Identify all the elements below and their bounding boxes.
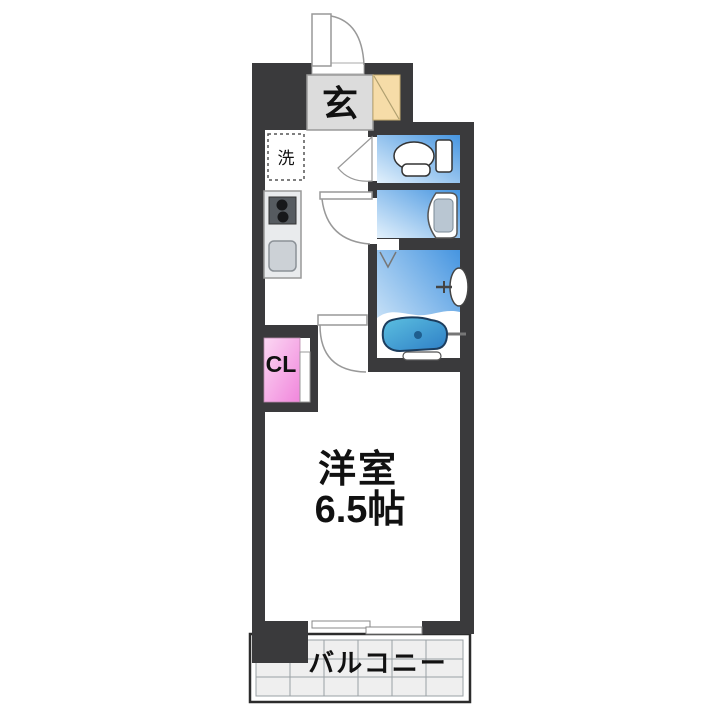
kitchen-sink-icon	[269, 241, 296, 271]
wall-segment	[377, 183, 460, 190]
entry-door-leaf	[312, 14, 331, 66]
washbasin-bowl	[434, 199, 453, 232]
toilet-tank	[436, 140, 452, 172]
window-panel	[312, 621, 370, 628]
entry-door-swing-arc	[331, 16, 364, 65]
toilet-base	[402, 164, 430, 176]
closet-door	[300, 352, 310, 402]
tub-drain	[414, 331, 422, 339]
main-room-door-leaf	[318, 315, 367, 325]
washroom-door-leaf	[320, 192, 372, 199]
closet-label: CL	[266, 351, 297, 377]
floor-plan-drawing: 玄 洗 CL 洋室 6.5帖 バルコニー	[0, 0, 720, 720]
shoe-cabinet	[373, 75, 400, 120]
main-room-label: 洋室	[318, 448, 398, 491]
wall-segment	[364, 63, 413, 75]
washroom-doorway	[368, 198, 377, 244]
wall-segment	[252, 63, 312, 75]
laundry-label: 洗	[278, 149, 295, 168]
stove-burner	[278, 212, 289, 223]
wall-segment	[252, 131, 265, 183]
wall-segment	[460, 135, 474, 634]
wall-segment	[400, 75, 413, 122]
entrance-label: 玄	[322, 83, 358, 124]
toilet-icon	[394, 140, 452, 176]
balcony-label: バルコニー	[308, 648, 447, 678]
wall-segment	[252, 402, 318, 412]
main-room-floor	[377, 372, 460, 414]
kitchen	[264, 191, 301, 278]
entry-door	[312, 14, 364, 74]
wall-segment	[252, 325, 318, 338]
wall-segment	[252, 191, 265, 591]
tub-step	[403, 352, 441, 360]
floor-plan-page: 玄 洗 CL 洋室 6.5帖 バルコニー	[0, 0, 720, 720]
main-room-size-label: 6.5帖	[315, 489, 406, 531]
wall-segment	[252, 75, 307, 131]
shower-fixture	[450, 268, 468, 306]
main-room-floor	[318, 325, 367, 415]
bathroom-doorway	[377, 239, 399, 250]
sliding-window	[312, 621, 422, 634]
wall-segment	[310, 338, 318, 402]
window-panel	[366, 627, 422, 634]
stove-burner	[277, 200, 288, 211]
washbasin-icon	[428, 193, 457, 238]
wall-segment	[422, 621, 474, 634]
wall-segment	[368, 122, 474, 135]
